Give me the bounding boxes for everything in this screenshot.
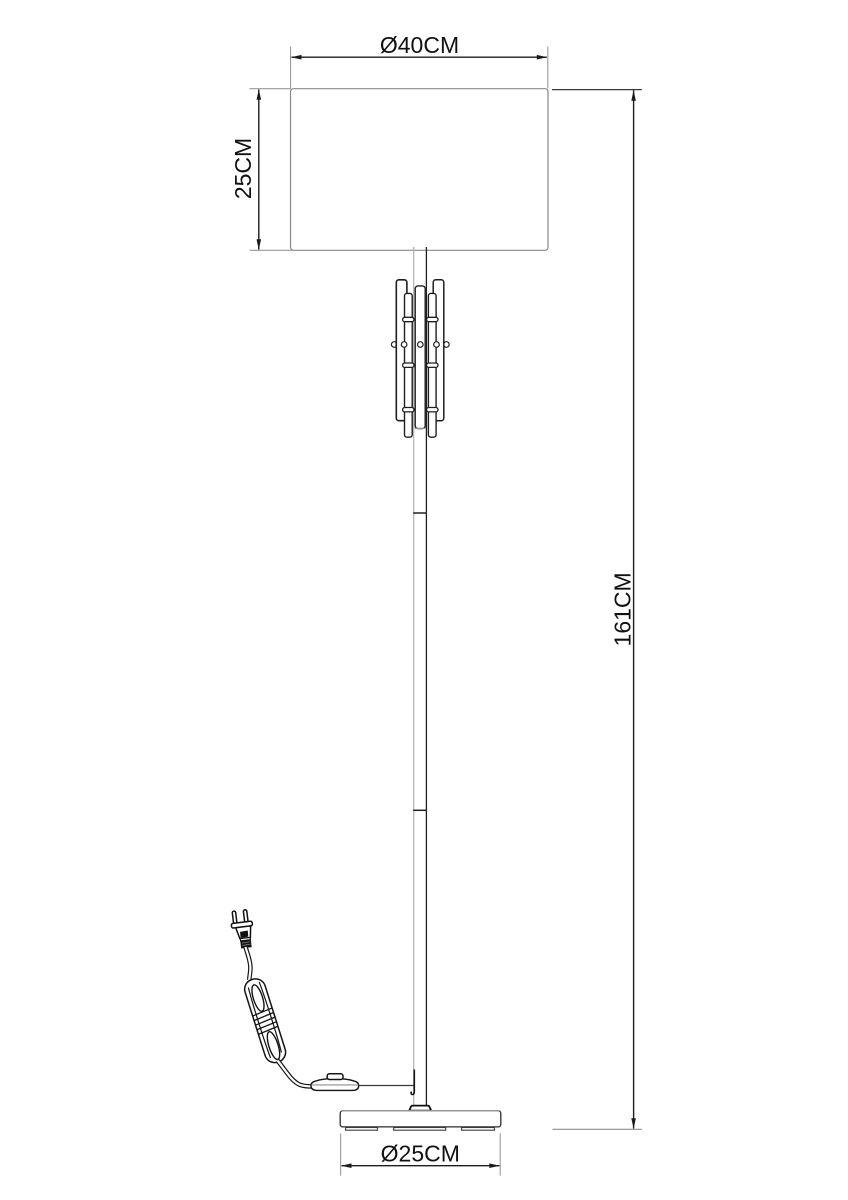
svg-text:161CM: 161CM (610, 572, 636, 646)
svg-text:25CM: 25CM (230, 138, 256, 199)
svg-text:Ø40CM: Ø40CM (380, 32, 459, 58)
svg-text:Ø25CM: Ø25CM (381, 1141, 460, 1167)
